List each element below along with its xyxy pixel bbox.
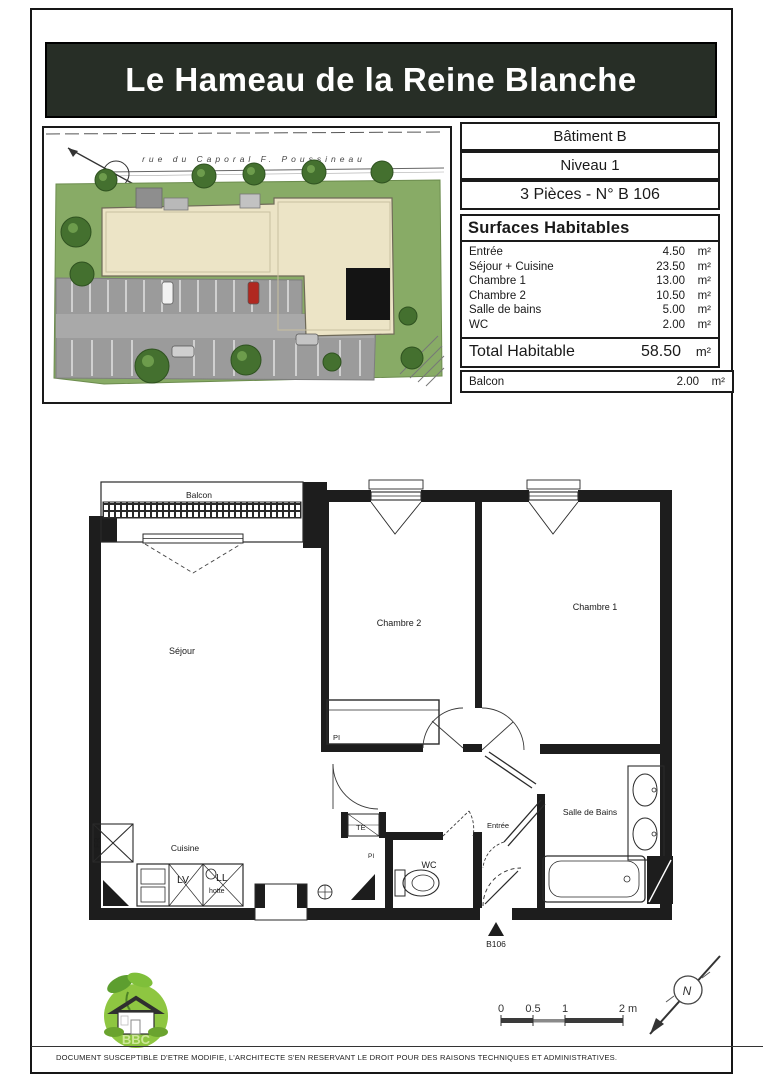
row-label: Entrée xyxy=(469,245,643,260)
row-value: 13.00 xyxy=(643,274,685,289)
unit-highlight xyxy=(346,268,390,320)
room-label-sejour: Séjour xyxy=(169,646,195,656)
kitchen-counter xyxy=(137,864,243,906)
table-row: Salle de bains 5.00 m² xyxy=(462,303,718,318)
north-label: N xyxy=(683,984,692,998)
bathroom-fixtures xyxy=(543,766,673,904)
row-label: Chambre 1 xyxy=(469,274,643,289)
row-unit: m² xyxy=(685,245,711,260)
table-row: Chambre 2 10.50 m² xyxy=(462,289,718,304)
scale-tick-1: 1 xyxy=(562,1003,568,1015)
closet-label-pi: PI xyxy=(333,733,340,742)
info-unit: 3 Pièces - N° B 106 xyxy=(460,180,720,210)
surfaces-header: Surfaces Habitables xyxy=(462,216,718,242)
info-unit-label: 3 Pièces - N° B 106 xyxy=(520,186,660,204)
site-plan-image: rue du Caporal F. Poussineau xyxy=(42,126,452,404)
surfaces-rows: Entrée 4.50 m² Séjour + Cuisine 23.50 m²… xyxy=(462,242,718,337)
kitchen-fixtures: FR LV LL hotte xyxy=(93,824,243,906)
door-arcs xyxy=(333,708,524,836)
fridge-label: FR xyxy=(93,837,102,848)
table-row: WC 2.00 m² xyxy=(462,318,718,333)
info-building: Bâtiment B xyxy=(460,122,720,151)
room-label-entree: Entrée xyxy=(487,821,509,830)
row-unit: m² xyxy=(685,260,711,275)
surfaces-table: Surfaces Habitables Entrée 4.50 m² Séjou… xyxy=(460,214,720,368)
unit-marker-label: B106 xyxy=(486,939,506,949)
balcony-label: Balcon xyxy=(469,376,657,388)
total-unit: m² xyxy=(681,344,711,359)
north-arrow-svg: N xyxy=(632,948,732,1048)
floor-plan-svg: Balcon PI xyxy=(85,476,685,958)
walls xyxy=(89,482,672,920)
sink xyxy=(141,869,165,884)
closet-chambre2: PI xyxy=(327,700,439,744)
table-row: Entrée 4.50 m² xyxy=(462,245,718,260)
bbc-logo-icon: BBC xyxy=(90,968,176,1054)
total-value: 58.50 xyxy=(641,343,681,361)
row-value: 10.50 xyxy=(643,289,685,304)
room-label-chambre1: Chambre 1 xyxy=(573,602,618,612)
row-unit: m² xyxy=(685,289,711,304)
electrical-panel: TE xyxy=(348,814,379,836)
hood-label: hotte xyxy=(209,888,225,895)
disclaimer-text: DOCUMENT SUSCEPTIBLE D'ETRE MODIFIE, L'A… xyxy=(31,1046,763,1062)
scale-tick-0: 0 xyxy=(498,1003,504,1015)
sink-1 xyxy=(633,774,657,806)
washer-label: LL xyxy=(216,872,228,884)
bbc-label: BBC xyxy=(122,1032,151,1047)
room-label-cuisine: Cuisine xyxy=(171,843,200,853)
title-bar: Le Hameau de la Reine Blanche xyxy=(45,42,717,118)
room-labels: Séjour Chambre 2 Chambre 1 Cuisine WC En… xyxy=(169,602,617,870)
room-label-sdb: Salle de Bains xyxy=(563,807,617,817)
total-row: Total Habitable 58.50 m² xyxy=(462,337,718,366)
north-arrow-icon: N xyxy=(632,948,732,1053)
unit-entry-marker: B106 xyxy=(486,922,506,949)
row-label: Séjour + Cuisine xyxy=(469,260,643,275)
floorplan-document: { "title": "Le Hameau de la Reine Blanch… xyxy=(0,0,763,1080)
dishwasher-label: LV xyxy=(177,874,189,886)
floor-plan: Balcon PI xyxy=(85,476,685,963)
row-label: Salle de bains xyxy=(469,303,643,318)
room-label-balcon: Balcon xyxy=(186,490,212,500)
room-label-chambre2: Chambre 2 xyxy=(377,618,422,628)
vanity xyxy=(628,766,664,860)
te-label: TE xyxy=(356,823,366,832)
windows xyxy=(369,480,580,534)
row-value: 4.50 xyxy=(643,245,685,260)
toilet xyxy=(395,870,439,896)
room-label-wc: WC xyxy=(422,860,437,870)
scale-tick-05: 0.5 xyxy=(525,1003,540,1015)
balcony: Balcon xyxy=(101,482,303,573)
total-label: Total Habitable xyxy=(469,343,641,361)
table-row: Chambre 1 13.00 m² xyxy=(462,274,718,289)
table-row: Séjour + Cuisine 23.50 m² xyxy=(462,260,718,275)
row-value: 23.50 xyxy=(643,260,685,275)
row-unit: m² xyxy=(685,303,711,318)
info-building-label: Bâtiment B xyxy=(553,128,626,145)
closet-label-pi2: PI xyxy=(368,853,374,860)
info-level-label: Niveau 1 xyxy=(560,157,619,174)
row-label: Chambre 2 xyxy=(469,289,643,304)
sink-2 xyxy=(633,818,657,850)
row-label: WC xyxy=(469,318,643,333)
balcony-unit: m² xyxy=(699,376,725,388)
balcony-row: Balcon 2.00 m² xyxy=(460,370,734,393)
row-value: 5.00 xyxy=(643,303,685,318)
row-unit: m² xyxy=(685,318,711,333)
balcony-railing xyxy=(103,502,301,518)
balcony-value: 2.00 xyxy=(657,376,699,388)
site-plan-svg: rue du Caporal F. Poussineau xyxy=(44,128,446,398)
page-title: Le Hameau de la Reine Blanche xyxy=(125,61,637,99)
row-value: 2.00 xyxy=(643,318,685,333)
row-unit: m² xyxy=(685,274,711,289)
info-level: Niveau 1 xyxy=(460,151,720,180)
